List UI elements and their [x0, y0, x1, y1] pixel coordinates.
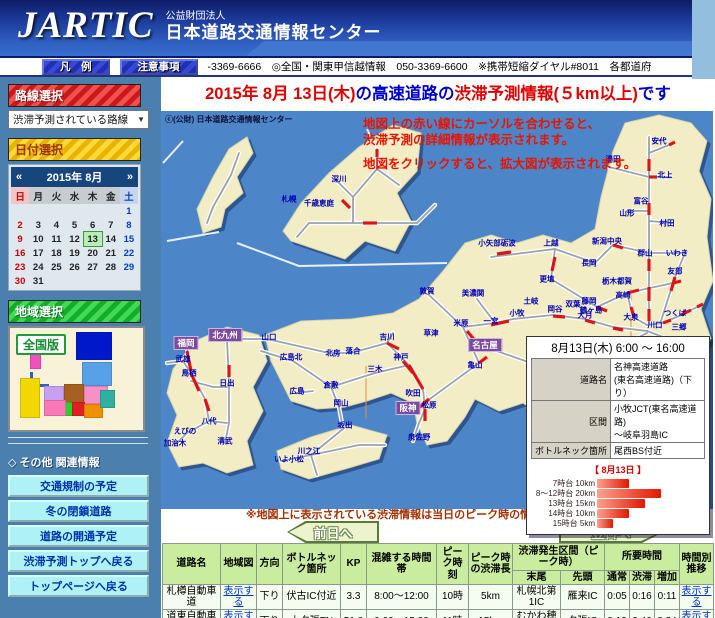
- col-peak-time: ピーク時刻: [437, 544, 469, 585]
- cell-bottleneck: 大夕張TN: [283, 610, 341, 618]
- map-city-box[interactable]: 名古屋: [468, 338, 502, 352]
- calendar-day: [102, 274, 120, 288]
- region-block[interactable]: [20, 378, 40, 418]
- tooltip-row-value: 小牧JCT(東名高速道路) ～岐阜羽島IC: [611, 401, 705, 443]
- show-hourly-link[interactable]: 表示する: [682, 586, 712, 609]
- map-label: 吉川: [380, 333, 395, 341]
- cell-bottleneck: 伏古IC付近: [283, 585, 341, 610]
- org-name-block: 公益財団法人 日本道路交通情報センター: [166, 11, 382, 42]
- calendar-month-label: 2015年 8月: [47, 169, 103, 185]
- region-select-header: 地域選択: [8, 300, 141, 323]
- map-instruction-line: 渋滞予測の詳細情報が表示されます。: [363, 132, 636, 148]
- map-label: 山形: [620, 209, 635, 217]
- map-city-box[interactable]: 福岡: [173, 336, 198, 350]
- cell-jam: 0:16: [630, 585, 655, 610]
- calendar-weekday: 日: [11, 187, 29, 204]
- jam-bar: [597, 479, 629, 488]
- map-label: 村田: [660, 219, 675, 227]
- calendar-day[interactable]: 17: [29, 246, 47, 260]
- region-block[interactable]: [44, 386, 64, 401]
- map-instruction-line: 地図をクリックすると、拡大図が表示されます。: [363, 156, 636, 172]
- region-minimap[interactable]: 全国版: [8, 326, 145, 432]
- calendar-day[interactable]: 2: [11, 218, 29, 232]
- cell-kp: 51.0: [341, 610, 367, 618]
- map-label: 北房: [326, 349, 341, 357]
- cell-peak_length: 15km: [469, 610, 513, 618]
- top-right-strip: [692, 0, 715, 79]
- tooltip-row-value: 名神高速道路 (東名高速道路)（下り）: [611, 359, 705, 401]
- map-city-box[interactable]: 阪神: [395, 401, 420, 415]
- col-peak-length: ピーク時の渋滞長: [469, 544, 513, 585]
- cell-normal: 0:05: [605, 585, 630, 610]
- map-label: 武雄: [176, 355, 191, 363]
- calendar-day[interactable]: 1: [120, 204, 138, 218]
- calendar-weekday: 土: [120, 187, 138, 204]
- col-tail: 末尾: [513, 571, 561, 585]
- jam-bar-row: 13時台 15km: [529, 498, 705, 508]
- calendar-day[interactable]: 29: [120, 260, 138, 274]
- header-decoration: [246, 41, 715, 56]
- cell-peak_time: 11時: [437, 610, 469, 618]
- top-navbar: 凡 例 注意事項 -3369-6666 ◎全国・関東甲信越情報 050-3369…: [0, 56, 715, 77]
- calendar-day[interactable]: 22: [120, 246, 138, 260]
- map-label: 一宮: [484, 317, 499, 325]
- prediction-table: 道路名 地域図 方向 ボトルネック箇所 KP 混雑する時間帯 ピーク時刻 ピーク…: [162, 543, 714, 618]
- calendar-day[interactable]: 27: [84, 260, 102, 274]
- col-travel-time: 所要時間: [605, 544, 680, 571]
- map-label: 神戸: [394, 353, 409, 361]
- chevron-down-icon: ▼: [137, 115, 145, 124]
- org-type: 公益財団法人: [166, 11, 382, 23]
- region-block[interactable]: [100, 390, 115, 408]
- route-dropdown[interactable]: 渋滞予測されている路線 ▼: [8, 110, 149, 129]
- calendar-grid: 日月火水木金土 12345678910111213141516171819202…: [11, 187, 138, 288]
- map-label: 倉敷: [324, 381, 339, 389]
- cell-head: 雁来IC: [561, 585, 605, 610]
- map-label: 土岐: [524, 297, 539, 305]
- calendar-day: [120, 274, 138, 288]
- map-label: 岡谷: [548, 305, 563, 313]
- date-select-header: 日付選択: [8, 138, 141, 161]
- calendar-day[interactable]: 20: [84, 246, 102, 260]
- jam-bar-row: 14時台 10km: [529, 508, 705, 518]
- cell-normal: 0:12: [605, 610, 630, 618]
- other-info-header: ◇ その他 関連情報: [8, 454, 161, 470]
- map-label: 高崎: [616, 291, 631, 299]
- calendar-day: [102, 204, 120, 218]
- japan-traffic-map[interactable]: ⓒ(公財) 日本道路交通情報センター 地図上の赤い線にカーソルを合わせると、渋滞…: [161, 111, 713, 509]
- tooltip-row-label: 区間: [532, 401, 611, 443]
- sidebar-link[interactable]: 冬の閉鎖道路: [8, 500, 149, 522]
- cell-road: 札樽自動車道: [163, 585, 221, 610]
- col-jam-section: 渋滞発生区間（ピーク時）: [513, 544, 605, 571]
- jam-bar: [597, 499, 645, 508]
- cell-head: 夕張IC: [561, 610, 605, 618]
- map-label: 米原: [454, 319, 469, 327]
- calendar-day[interactable]: 28: [102, 260, 120, 274]
- map-instructions: 地図上の赤い線にカーソルを合わせると、渋滞予測の詳細情報が表示されます。地図をク…: [363, 116, 636, 172]
- calendar-weekday: 水: [65, 187, 83, 204]
- calendar-weekday: 金: [102, 187, 120, 204]
- region-block[interactable]: [76, 332, 112, 360]
- map-label: 加治木: [164, 439, 187, 447]
- title-suffix: です: [638, 85, 671, 103]
- map-label: 深川: [332, 175, 347, 183]
- calendar-day[interactable]: 26: [65, 260, 83, 274]
- region-block[interactable]: [82, 362, 112, 386]
- region-block[interactable]: [44, 400, 66, 416]
- calendar-day[interactable]: 12: [65, 232, 83, 246]
- map-instruction-line: 地図上の赤い線にカーソルを合わせると、: [363, 116, 636, 132]
- map-city-box[interactable]: 北九州: [208, 328, 242, 342]
- map-label: 広島北: [280, 353, 303, 361]
- map-label: 更埴: [540, 275, 555, 283]
- calendar-day[interactable]: 25: [47, 260, 65, 274]
- cell-tail: むかわ穂別IC: [513, 610, 561, 618]
- calendar-day: [47, 204, 65, 218]
- zenkoku-button[interactable]: 全国版: [16, 334, 66, 355]
- jam-bar: [597, 489, 661, 498]
- col-head: 先頭: [561, 571, 605, 585]
- calendar-day[interactable]: 8: [120, 218, 138, 232]
- jam-bar-label: 15時台 5km: [529, 518, 597, 529]
- map-label: 藤岡: [582, 297, 597, 305]
- cell-hourly: 表示する: [680, 585, 714, 610]
- calendar-day[interactable]: 19: [65, 246, 83, 260]
- sidebar-link[interactable]: 渋滞予測トップへ戻る: [8, 550, 149, 572]
- calendar-day[interactable]: 24: [29, 260, 47, 274]
- sidebar-link[interactable]: 道路の開通予定: [8, 525, 149, 547]
- cell-peak_length: 5km: [469, 585, 513, 610]
- sidebar-link[interactable]: トップページへ戻る: [8, 575, 149, 597]
- col-jam: 渋滞: [630, 571, 655, 585]
- calendar-day[interactable]: 21: [102, 246, 120, 260]
- map-label: えびの: [174, 427, 197, 435]
- map-label: 岡山: [334, 399, 349, 407]
- map-label: 吹田: [406, 389, 421, 397]
- calendar-day[interactable]: 23: [11, 260, 29, 274]
- calendar-day[interactable]: 15: [120, 232, 138, 246]
- jam-bar-row: 7時台 10km: [529, 478, 705, 488]
- map-label: 川口: [648, 321, 663, 329]
- show-areamap-link[interactable]: 表示する: [224, 611, 254, 618]
- title-mid: の高速道路の: [356, 85, 455, 103]
- calendar-day: [84, 204, 102, 218]
- col-hourly: 時間別推移: [680, 544, 714, 585]
- cell-direction: 下り: [257, 585, 283, 610]
- cell-tail: 札幌北第1IC: [513, 585, 561, 610]
- col-normal: 通常: [605, 571, 630, 585]
- map-label: 長岡: [582, 259, 597, 267]
- calendar-day: [65, 274, 83, 288]
- cell-busy_hours: 9:00～15:00: [367, 610, 437, 618]
- org-name: 日本道路交通情報センター: [166, 23, 382, 43]
- calendar-title-bar: « 2015年 8月 »: [11, 167, 138, 187]
- calendar-day[interactable]: 16: [11, 246, 29, 260]
- col-direction: 方向: [257, 544, 283, 585]
- calendar-day: [84, 274, 102, 288]
- previous-day-label: 前日へ: [287, 521, 379, 543]
- calendar-day[interactable]: 13: [84, 232, 102, 246]
- col-busy-hours: 混雑する時間帯: [367, 544, 437, 585]
- calendar-day[interactable]: 31: [29, 274, 47, 288]
- sidebar: 路線選択 渋滞予測されている路線 ▼ 日付選択 « 2015年 8月 » 日月火…: [0, 77, 161, 618]
- col-increase: 増加: [655, 571, 680, 585]
- calendar-day[interactable]: 10: [29, 232, 47, 246]
- calendar-day[interactable]: 7: [102, 218, 120, 232]
- site-header: JARTIC 公益財団法人 日本道路交通情報センター: [0, 0, 715, 56]
- jam-length-chart: 7時台 10km8～12時台 20km13時台 15km14時台 10km15時…: [527, 478, 709, 530]
- show-hourly-link[interactable]: 表示する: [682, 611, 712, 618]
- calendar: « 2015年 8月 » 日月火水木金土 1234567891011121314…: [8, 164, 141, 291]
- map-label: 北上: [658, 171, 673, 179]
- map-label: 清武: [218, 437, 233, 445]
- calendar-prev-icon[interactable]: «: [16, 171, 22, 183]
- map-label: 松原: [422, 401, 437, 409]
- cell-areamap: 表示する: [221, 610, 257, 618]
- calendar-day[interactable]: 11: [47, 232, 65, 246]
- calendar-day[interactable]: 9: [11, 232, 29, 246]
- map-label: 亀山: [468, 361, 483, 369]
- map-label: 日出: [220, 379, 235, 387]
- calendar-day[interactable]: 4: [47, 218, 65, 232]
- calendar-next-icon[interactable]: »: [127, 171, 133, 183]
- map-label: 郡山: [638, 249, 653, 257]
- main-content: 2015年 8月 13日(木)の高速道路の渋滞予測情報(５km以上)です ⓒ(公…: [161, 77, 715, 618]
- calendar-weekday: 月: [29, 187, 47, 204]
- calendar-day: [11, 204, 29, 218]
- col-road: 道路名: [163, 544, 221, 585]
- jam-bar-row: 8～12時台 20km: [529, 488, 705, 498]
- tooltip-title: 8月13日(木) 6:00 ～ 16:00: [527, 337, 709, 358]
- cell-jam: 0:46: [630, 610, 655, 618]
- map-label: 広島: [290, 387, 305, 395]
- cell-hourly: 表示する: [680, 610, 714, 618]
- map-label: 三郷: [672, 323, 687, 331]
- map-label: 三木: [368, 365, 383, 373]
- show-areamap-link[interactable]: 表示する: [224, 586, 254, 609]
- cell-road: 道東自動車道: [163, 610, 221, 618]
- title-date: 2015年 8月 13日(木): [205, 85, 355, 103]
- map-label: いわき: [666, 249, 689, 257]
- tooltip-row-value: 尾西BS付近: [611, 443, 705, 459]
- map-label: 敦賀: [420, 287, 435, 295]
- previous-day-button[interactable]: 前日へ: [287, 521, 379, 543]
- calendar-day[interactable]: 14: [102, 232, 120, 246]
- map-label: 双葉: [566, 300, 581, 308]
- cell-direction: 下り: [257, 610, 283, 618]
- col-areamap: 地域図: [221, 544, 257, 585]
- calendar-day: [29, 204, 47, 218]
- cell-kp: 3.3: [341, 585, 367, 610]
- map-label: 鳥栖: [182, 369, 197, 377]
- route-dropdown-value: 渋滞予測されている路線: [13, 112, 128, 127]
- jartic-logo: JARTIC: [18, 9, 154, 42]
- title-info: 渋滞予測情報(５km以上): [455, 85, 638, 103]
- table-row: 道東自動車道表示する下り大夕張TN51.09:00～15:0011時15kmむか…: [163, 610, 714, 618]
- map-label: 富谷: [634, 197, 649, 205]
- route-select-header: 路線選択: [8, 84, 141, 107]
- map-label: 坂出: [338, 421, 353, 429]
- map-label: つくば: [664, 309, 687, 317]
- map-label: 落合: [346, 347, 361, 355]
- map-label: 山口: [262, 333, 277, 341]
- sidebar-link[interactable]: 交通規制の予定: [8, 475, 149, 497]
- tooltip-row-label: 道路名: [532, 359, 611, 401]
- legend-button[interactable]: 凡 例: [42, 59, 110, 75]
- map-label: 八代: [202, 417, 217, 425]
- calendar-day[interactable]: 5: [65, 218, 83, 232]
- map-copyright: ⓒ(公財) 日本道路交通情報センター: [165, 114, 293, 125]
- map-label: 小矢部砺波: [478, 239, 516, 247]
- calendar-day[interactable]: 18: [47, 246, 65, 260]
- jam-bar: [597, 509, 629, 518]
- col-bottleneck: ボトルネック箇所: [283, 544, 341, 585]
- map-label: 大泉: [624, 313, 639, 321]
- map-label: 栃木都賀: [602, 277, 632, 285]
- calendar-weekday: 木: [84, 187, 102, 204]
- phone-info: -3369-6666 ◎全国・関東甲信越情報 050-3369-6600 ※携帯…: [208, 59, 652, 74]
- congestion-tooltip: 8月13日(木) 6:00 ～ 16:00 道路名名神高速道路 (東名高速道路)…: [526, 336, 710, 535]
- map-label: いよ小松: [274, 455, 304, 463]
- map-label: 上越: [544, 239, 559, 247]
- cell-peak_time: 10時: [437, 585, 469, 610]
- tooltip-date-caption: 【 8月13日 】: [527, 463, 709, 476]
- map-label: 泉佐野: [408, 433, 431, 441]
- cell-busy_hours: 8:00～12:00: [367, 585, 437, 610]
- notes-button[interactable]: 注意事項: [120, 59, 198, 75]
- calendar-day: [47, 274, 65, 288]
- map-label: 札幌: [282, 195, 297, 203]
- map-label: 草津: [424, 329, 439, 337]
- calendar-day[interactable]: 3: [29, 218, 47, 232]
- calendar-weekday: 火: [47, 187, 65, 204]
- map-label: 小牧: [510, 309, 525, 317]
- divider: [8, 443, 148, 444]
- map-label: 安代: [652, 137, 667, 145]
- calendar-day[interactable]: 6: [84, 218, 102, 232]
- map-label: 美濃関: [462, 289, 485, 297]
- tooltip-row-label: ボトルネック箇所: [532, 443, 611, 459]
- page-title: 2015年 8月 13日(木)の高速道路の渋滞予測情報(５km以上)です: [161, 77, 715, 111]
- map-label: 新潟中央: [592, 237, 622, 245]
- divider: [8, 437, 148, 438]
- cell-increase: 0:11: [655, 585, 680, 610]
- jam-bar: [597, 519, 613, 528]
- map-label: 大月: [578, 311, 593, 319]
- calendar-day[interactable]: 30: [11, 274, 29, 288]
- cell-areamap: 表示する: [221, 585, 257, 610]
- map-label: 千歳恵庭: [304, 199, 334, 207]
- calendar-day: [65, 204, 83, 218]
- col-kp: KP: [341, 544, 367, 585]
- jam-bar-row: 15時台 5km: [529, 518, 705, 528]
- map-label: 友部: [668, 267, 683, 275]
- table-row: 札樽自動車道表示する下り伏古IC付近3.38:00～12:0010時5km札幌北…: [163, 585, 714, 610]
- cell-increase: 0:34: [655, 610, 680, 618]
